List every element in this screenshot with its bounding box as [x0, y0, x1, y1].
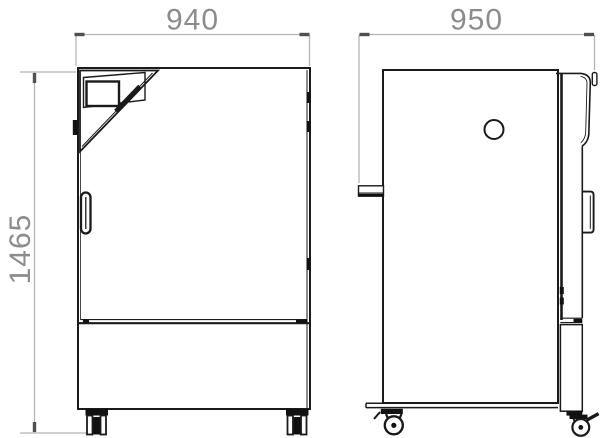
- dimension-label-side-depth: 950: [450, 4, 503, 37]
- dimension-tick: [300, 33, 310, 36]
- caster-fork-leg: [301, 416, 307, 435]
- caster-fork-leg: [101, 416, 107, 435]
- dimension-front-width: 940: [75, 4, 310, 67]
- dimension-tick: [33, 422, 36, 432]
- caster-hub: [578, 425, 583, 430]
- dimension-tick: [33, 73, 36, 83]
- panel-side-latch: [73, 120, 78, 135]
- base-frame: [366, 403, 558, 407]
- caster-hub: [391, 423, 396, 428]
- caster-fork-leg: [87, 416, 93, 435]
- side-door-handle: [583, 192, 594, 233]
- access-port-icon: [485, 120, 504, 139]
- caster-front-left: [86, 409, 109, 435]
- caster-fork-leg: [288, 416, 294, 435]
- dimension-label-front-width: 940: [166, 4, 219, 37]
- drawing-svg: 940 950 1465: [0, 0, 600, 438]
- door-lower-panel: [560, 325, 582, 412]
- caster-brake-lever: [587, 414, 599, 420]
- dimension-tick: [75, 33, 85, 36]
- side-view: [359, 70, 599, 436]
- front-view: [73, 68, 310, 435]
- caster-front-right: [286, 409, 309, 435]
- dimension-tick: [360, 33, 370, 36]
- side-door-profile: [556, 73, 597, 416]
- door-joint-detail: [574, 319, 583, 322]
- dimension-label-overall-height: 1465: [4, 214, 37, 285]
- door-handle: [81, 193, 91, 234]
- caster-swivel-tab: [374, 412, 380, 419]
- side-cabinet-outline: [383, 70, 558, 403]
- hinge-icon: [307, 121, 310, 132]
- caster-plate: [381, 409, 403, 414]
- caster-plate: [86, 409, 109, 416]
- rear-tab-shadow: [359, 194, 384, 196]
- caster-side-left: [374, 409, 403, 435]
- door-seal-mark: [560, 287, 564, 294]
- caster-side-right: [570, 414, 599, 436]
- door-seal-mark: [560, 298, 564, 305]
- display-screen: [87, 82, 120, 107]
- technical-drawing-canvas: 940 950 1465: [0, 0, 600, 438]
- dimension-tick: [584, 33, 594, 36]
- hinge-knuckle-icon: [592, 73, 597, 86]
- divider-detail: [83, 320, 89, 323]
- hinge-icon: [307, 92, 310, 103]
- panel-housing-inner: [581, 76, 588, 142]
- hinge-icon: [307, 258, 310, 270]
- caster-plate: [286, 409, 309, 416]
- divider-detail: [296, 320, 307, 323]
- rear-tab: [359, 186, 384, 196]
- front-cabinet-outline: [78, 68, 310, 409]
